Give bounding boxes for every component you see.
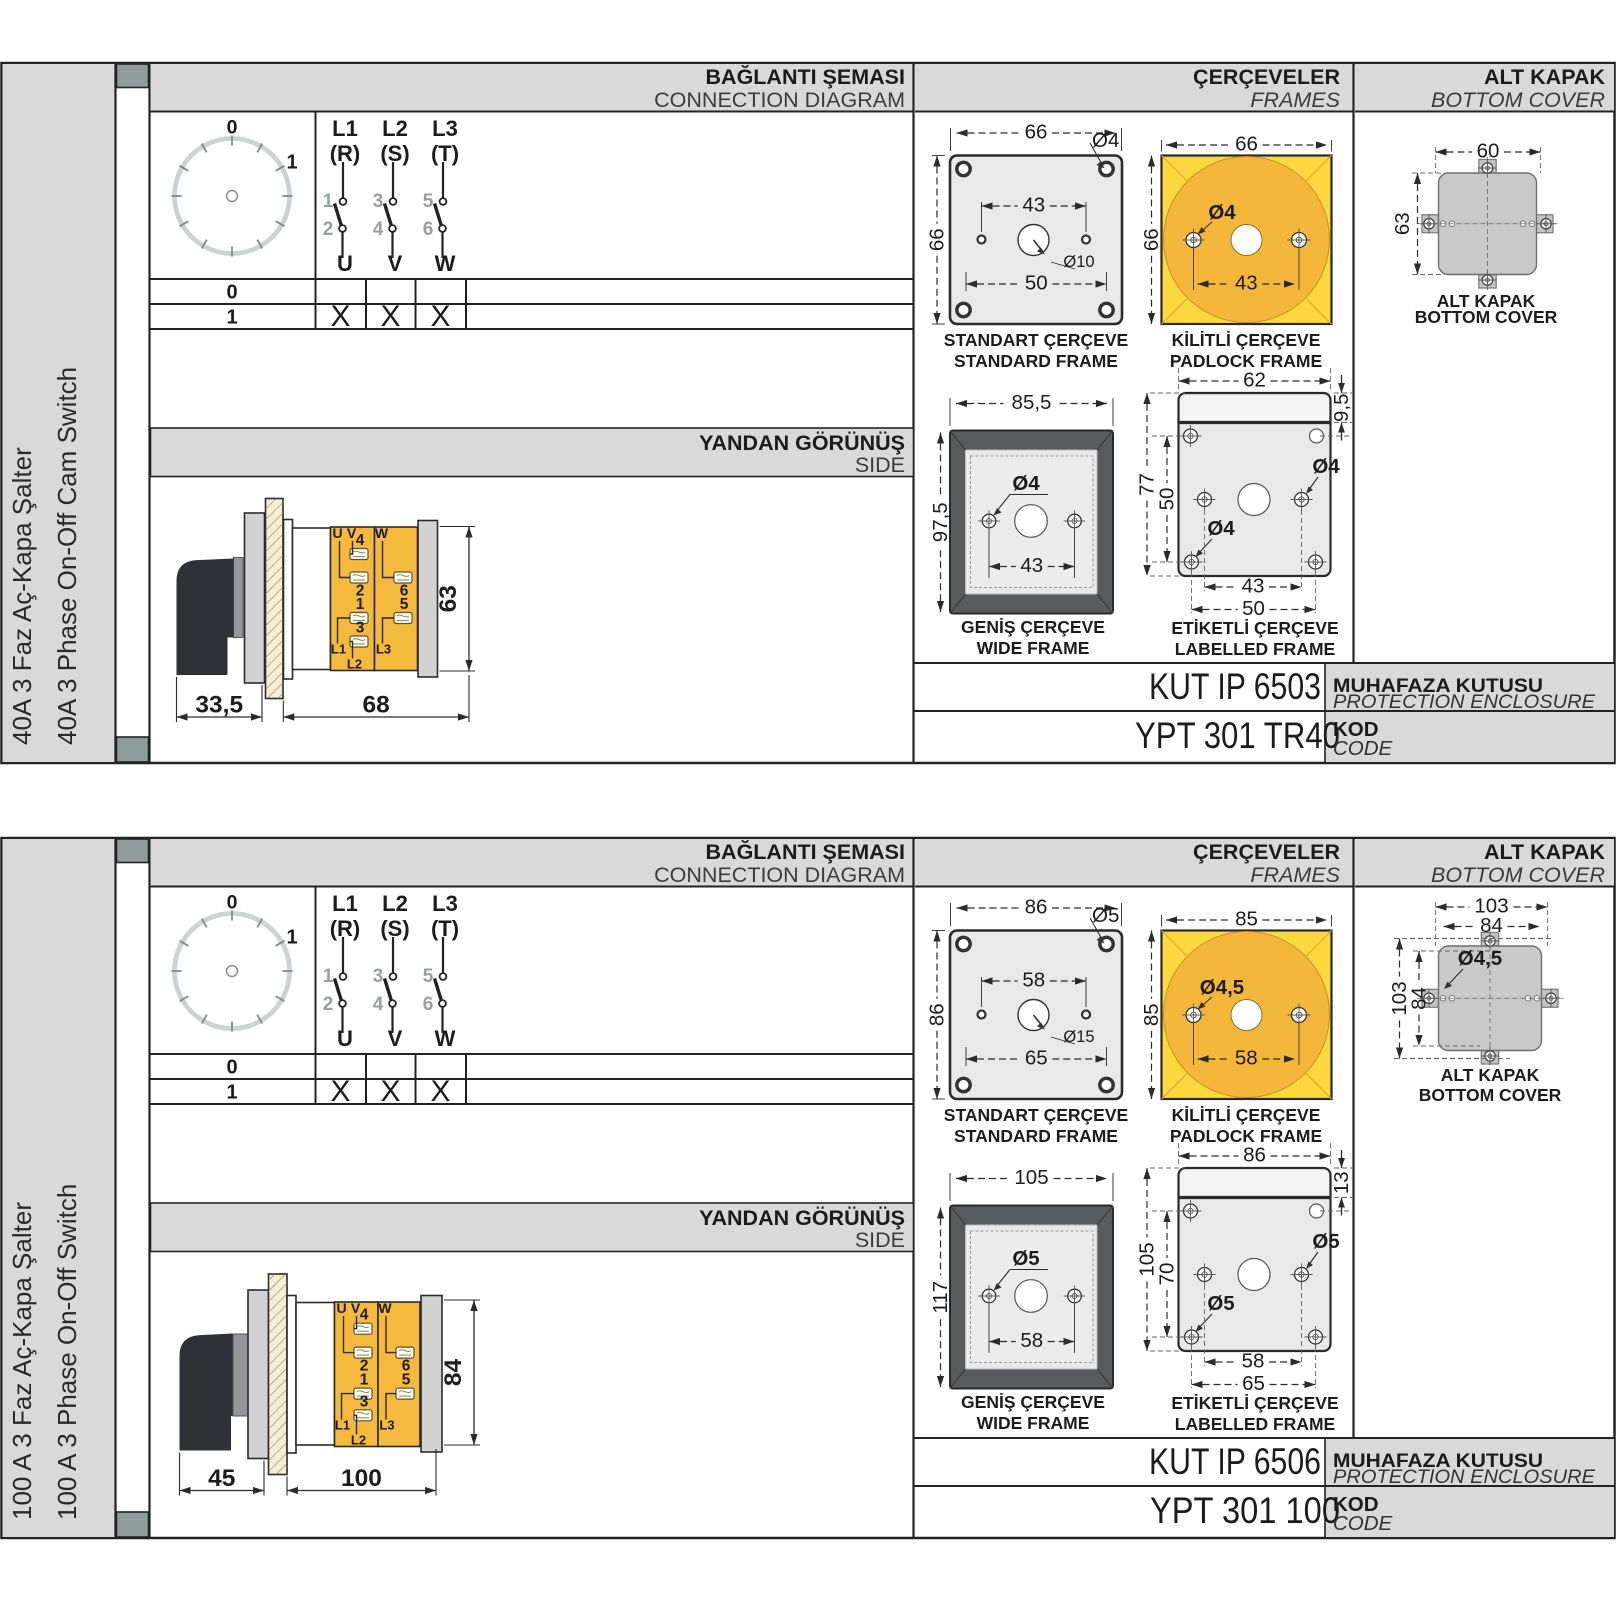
svg-text:U: U: [337, 251, 353, 276]
svg-text:58: 58: [1020, 1329, 1043, 1352]
svg-text:WIDE FRAME: WIDE FRAME: [977, 1413, 1090, 1433]
svg-text:(S): (S): [380, 916, 409, 941]
svg-text:WIDE FRAME: WIDE FRAME: [977, 638, 1090, 658]
svg-text:1: 1: [226, 1082, 237, 1104]
svg-text:L1: L1: [332, 116, 358, 141]
svg-text:58: 58: [1022, 969, 1045, 992]
svg-text:66: 66: [1235, 133, 1258, 156]
svg-text:6: 6: [423, 994, 434, 1015]
svg-text:Ø4: Ø4: [1092, 129, 1119, 152]
svg-text:0: 0: [226, 282, 237, 304]
svg-text:9,5: 9,5: [1330, 394, 1353, 423]
svg-text:13: 13: [1330, 1171, 1353, 1194]
svg-text:84: 84: [1408, 987, 1431, 1010]
svg-text:63: 63: [1391, 212, 1414, 235]
svg-text:(T): (T): [431, 141, 459, 166]
svg-text:68: 68: [363, 692, 390, 719]
svg-text:PROTECTION ENCLOSURE: PROTECTION ENCLOSURE: [1333, 692, 1595, 713]
svg-text:6: 6: [423, 219, 434, 240]
svg-text:50: 50: [1025, 272, 1048, 295]
svg-text:SIDE: SIDE: [855, 1228, 905, 1252]
svg-text:Ø5: Ø5: [1012, 1247, 1039, 1270]
svg-text:Ø4: Ø4: [1312, 455, 1340, 478]
svg-text:Ø5: Ø5: [1207, 1292, 1234, 1315]
svg-text:45: 45: [208, 1465, 235, 1492]
svg-text:100: 100: [341, 1465, 382, 1492]
svg-text:CONNECTION DIAGRAM: CONNECTION DIAGRAM: [654, 88, 905, 112]
svg-text:117: 117: [929, 1281, 952, 1314]
svg-text:1: 1: [360, 1372, 369, 1389]
svg-text:V: V: [388, 1026, 403, 1051]
svg-text:BOTTOM COVER: BOTTOM COVER: [1415, 307, 1558, 327]
svg-text:L2: L2: [382, 891, 408, 916]
svg-text:58: 58: [1235, 1047, 1258, 1070]
svg-text:ETİKETLİ ÇERÇEVE: ETİKETLİ ÇERÇEVE: [1171, 618, 1338, 638]
svg-text:L2: L2: [382, 116, 408, 141]
svg-text:Ø4: Ø4: [1208, 201, 1236, 224]
svg-text:STANDARD FRAME: STANDARD FRAME: [954, 1126, 1118, 1146]
svg-text:105: 105: [1014, 1166, 1048, 1189]
svg-text:LABELLED FRAME: LABELLED FRAME: [1175, 639, 1335, 659]
svg-text:43: 43: [1242, 575, 1265, 598]
svg-text:5: 5: [423, 191, 434, 212]
svg-text:58: 58: [1242, 1350, 1265, 1373]
svg-text:X: X: [430, 1075, 450, 1108]
svg-text:W: W: [378, 1300, 392, 1316]
svg-text:L1: L1: [335, 1418, 350, 1433]
svg-text:L2: L2: [351, 1433, 366, 1448]
svg-text:YPT 301 100: YPT 301 100: [1150, 1490, 1340, 1531]
svg-text:STANDARD FRAME: STANDARD FRAME: [954, 351, 1118, 371]
svg-text:FRAMES: FRAMES: [1250, 863, 1340, 887]
svg-text:BOTTOM COVER: BOTTOM COVER: [1431, 863, 1605, 887]
svg-text:0: 0: [226, 1057, 237, 1079]
svg-text:L1: L1: [332, 891, 358, 916]
svg-text:50: 50: [1156, 488, 1179, 511]
svg-text:(T): (T): [431, 916, 459, 941]
svg-text:40A 3 Phase On-Off Cam Switch: 40A 3 Phase On-Off Cam Switch: [52, 367, 82, 745]
svg-text:Ø5: Ø5: [1312, 1230, 1339, 1253]
svg-text:L1: L1: [331, 642, 346, 657]
svg-text:100 A 3 Faz Aç-Kapa Şalter: 100 A 3 Faz Aç-Kapa Şalter: [7, 1202, 37, 1520]
svg-text:PROTECTION ENCLOSURE: PROTECTION ENCLOSURE: [1333, 1467, 1595, 1488]
svg-text:BAĞLANTI ŞEMASI: BAĞLANTI ŞEMASI: [706, 839, 905, 864]
svg-text:ALT KAPAK: ALT KAPAK: [1484, 840, 1605, 864]
svg-text:Ø4,5: Ø4,5: [1200, 976, 1244, 999]
svg-text:Ø15: Ø15: [1063, 1028, 1094, 1046]
svg-text:70: 70: [1156, 1263, 1179, 1286]
svg-text:Ø4,5: Ø4,5: [1458, 947, 1502, 970]
svg-text:65: 65: [1025, 1047, 1048, 1070]
svg-text:W: W: [435, 251, 456, 276]
svg-text:W: W: [435, 1026, 456, 1051]
svg-text:4: 4: [360, 1307, 369, 1324]
svg-text:KUT IP 6506: KUT IP 6506: [1149, 1441, 1321, 1482]
svg-text:X: X: [380, 300, 400, 333]
svg-text:ÇERÇEVELER: ÇERÇEVELER: [1193, 65, 1340, 89]
svg-text:86: 86: [1243, 1144, 1266, 1167]
svg-text:1: 1: [286, 152, 297, 174]
svg-text:66: 66: [1140, 228, 1163, 251]
svg-text:43: 43: [1020, 554, 1043, 577]
svg-text:1: 1: [286, 927, 297, 949]
svg-text:63: 63: [435, 585, 462, 612]
svg-text:0: 0: [227, 117, 238, 139]
svg-text:Ø10: Ø10: [1063, 253, 1094, 271]
svg-text:L3: L3: [376, 642, 391, 657]
svg-text:U: U: [336, 1300, 346, 1316]
svg-text:85,5: 85,5: [1012, 391, 1052, 414]
svg-text:X: X: [380, 1075, 400, 1108]
svg-text:L3: L3: [432, 891, 458, 916]
svg-text:33,5: 33,5: [195, 692, 243, 719]
svg-text:62: 62: [1243, 369, 1266, 392]
svg-text:YANDAN GÖRÜNÜŞ: YANDAN GÖRÜNÜŞ: [699, 430, 905, 455]
svg-text:GENİŞ ÇERÇEVE: GENİŞ ÇERÇEVE: [961, 617, 1105, 637]
svg-text:97,5: 97,5: [929, 502, 952, 542]
svg-text:Ø5: Ø5: [1092, 904, 1119, 927]
svg-text:84: 84: [1480, 914, 1503, 937]
svg-text:100 A 3 Phase On-Off Switch: 100 A 3 Phase On-Off Switch: [52, 1184, 82, 1520]
svg-text:X: X: [430, 300, 450, 333]
svg-text:2: 2: [323, 219, 334, 240]
svg-text:3: 3: [373, 191, 384, 212]
svg-text:STANDART ÇERÇEVE: STANDART ÇERÇEVE: [944, 330, 1128, 350]
svg-text:4: 4: [373, 994, 384, 1015]
svg-text:CONNECTION DIAGRAM: CONNECTION DIAGRAM: [654, 863, 905, 887]
svg-text:1: 1: [323, 191, 334, 212]
svg-text:66: 66: [926, 228, 949, 251]
svg-text:U: U: [337, 1026, 353, 1051]
svg-text:ALT KAPAK: ALT KAPAK: [1441, 1065, 1540, 1085]
svg-text:43: 43: [1235, 272, 1258, 295]
svg-text:85: 85: [1140, 1003, 1163, 1026]
svg-text:5: 5: [423, 966, 434, 987]
svg-text:(S): (S): [380, 141, 409, 166]
svg-text:5: 5: [400, 596, 409, 613]
svg-text:KİLİTLİ ÇERÇEVE: KİLİTLİ ÇERÇEVE: [1172, 1105, 1321, 1125]
svg-text:Ø4: Ø4: [1207, 517, 1235, 540]
svg-text:LABELLED FRAME: LABELLED FRAME: [1175, 1414, 1335, 1434]
svg-text:85: 85: [1235, 908, 1258, 931]
svg-text:40A 3 Faz Aç-Kapa Şalter: 40A 3 Faz Aç-Kapa Şalter: [7, 447, 37, 745]
svg-text:L2: L2: [347, 657, 362, 672]
svg-text:66: 66: [1025, 121, 1048, 144]
svg-text:SIDE: SIDE: [855, 453, 905, 477]
svg-text:ALT KAPAK: ALT KAPAK: [1484, 65, 1605, 89]
svg-text:YANDAN GÖRÜNÜŞ: YANDAN GÖRÜNÜŞ: [699, 1205, 905, 1230]
svg-text:43: 43: [1022, 194, 1045, 217]
svg-text:65: 65: [1242, 1372, 1265, 1395]
svg-text:1: 1: [226, 307, 237, 329]
svg-text:W: W: [375, 525, 389, 541]
svg-text:(R): (R): [330, 916, 361, 941]
svg-text:ETİKETLİ ÇERÇEVE: ETİKETLİ ÇERÇEVE: [1171, 1393, 1338, 1413]
svg-text:3: 3: [373, 966, 384, 987]
svg-text:L3: L3: [432, 116, 458, 141]
svg-text:Ø4: Ø4: [1012, 472, 1040, 495]
svg-text:86: 86: [1025, 896, 1048, 919]
svg-text:U: U: [332, 525, 342, 541]
svg-text:CODE: CODE: [1333, 1512, 1393, 1535]
svg-text:1: 1: [323, 966, 334, 987]
svg-text:KUT IP 6503: KUT IP 6503: [1149, 666, 1321, 707]
svg-text:60: 60: [1477, 140, 1500, 163]
svg-text:V: V: [388, 251, 403, 276]
svg-text:BOTTOM COVER: BOTTOM COVER: [1431, 88, 1605, 112]
svg-text:ÇERÇEVELER: ÇERÇEVELER: [1193, 840, 1340, 864]
svg-text:4: 4: [356, 532, 365, 549]
svg-text:86: 86: [926, 1003, 949, 1026]
svg-text:BAĞLANTI ŞEMASI: BAĞLANTI ŞEMASI: [706, 64, 905, 89]
svg-text:GENİŞ ÇERÇEVE: GENİŞ ÇERÇEVE: [961, 1392, 1105, 1412]
svg-text:5: 5: [402, 1372, 411, 1389]
svg-text:4: 4: [373, 219, 384, 240]
svg-text:L3: L3: [379, 1418, 394, 1433]
svg-text:3: 3: [360, 1393, 369, 1410]
svg-text:3: 3: [356, 620, 365, 637]
svg-text:CODE: CODE: [1333, 737, 1393, 760]
svg-text:0: 0: [227, 892, 238, 914]
svg-text:1: 1: [356, 596, 365, 613]
svg-text:X: X: [330, 300, 350, 333]
svg-text:50: 50: [1242, 597, 1265, 620]
svg-text:2: 2: [323, 994, 334, 1015]
svg-text:FRAMES: FRAMES: [1250, 88, 1340, 112]
svg-text:X: X: [330, 1075, 350, 1108]
svg-text:STANDART ÇERÇEVE: STANDART ÇERÇEVE: [944, 1105, 1128, 1125]
svg-text:YPT 301 TR40: YPT 301 TR40: [1135, 715, 1340, 756]
svg-text:84: 84: [440, 1359, 467, 1387]
svg-text:(R): (R): [330, 141, 361, 166]
svg-text:BOTTOM COVER: BOTTOM COVER: [1419, 1085, 1562, 1105]
svg-text:KİLİTLİ ÇERÇEVE: KİLİTLİ ÇERÇEVE: [1172, 330, 1321, 350]
